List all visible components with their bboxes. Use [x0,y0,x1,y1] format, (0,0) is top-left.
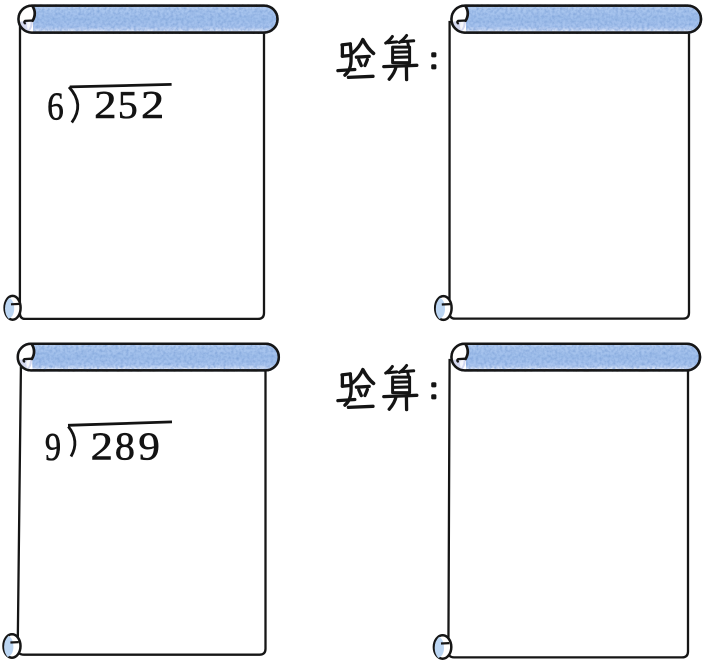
svg-text:2: 2 [141,83,164,127]
svg-text:8: 8 [115,424,135,468]
svg-text:5: 5 [118,83,138,127]
svg-text:9: 9 [138,424,160,468]
svg-text:6: 6 [47,85,64,129]
svg-text:2: 2 [91,424,113,468]
svg-text:2: 2 [94,83,116,127]
svg-text:9: 9 [45,425,61,469]
